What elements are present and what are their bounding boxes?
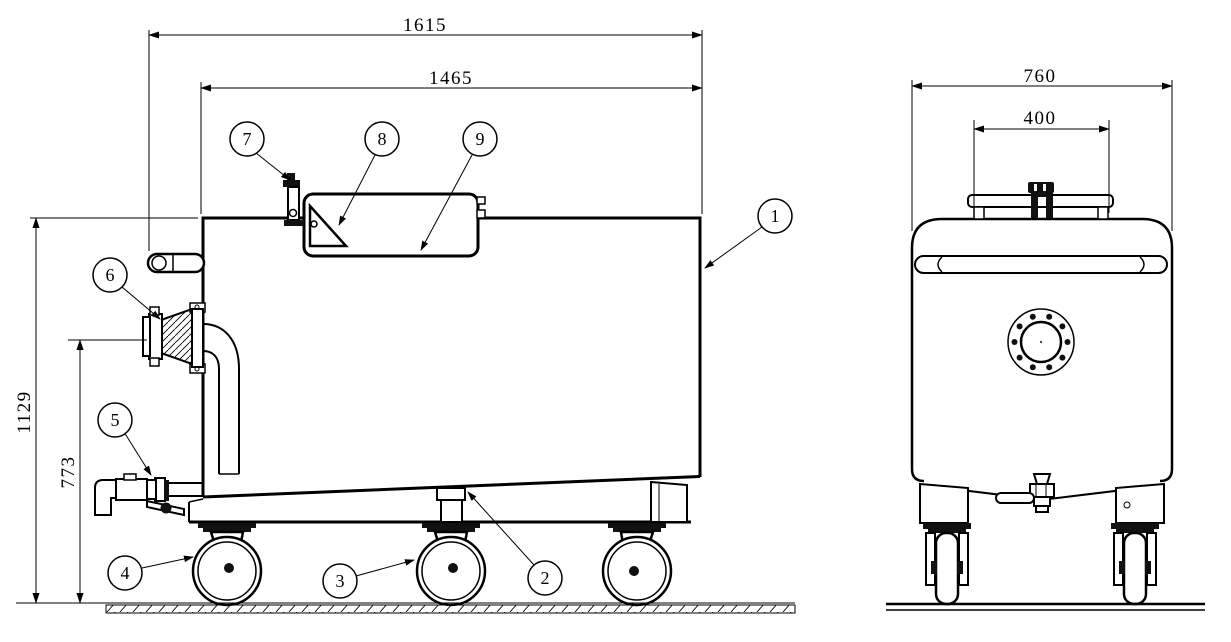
callout-label-9: 9 <box>476 129 485 149</box>
skirt-left <box>920 484 968 523</box>
hinge-upper <box>477 197 485 204</box>
ground-side <box>16 603 795 613</box>
hinge-lower <box>477 210 485 218</box>
callout-label-8: 8 <box>378 129 387 149</box>
callout-label-6: 6 <box>106 265 115 285</box>
handle-bar-front <box>915 256 1167 273</box>
drawing-canvas: 1615 1465 1129 773 1 2 <box>0 0 1231 642</box>
handle-bar-side <box>148 254 204 272</box>
dim-label-overall-height: 1129 <box>14 390 35 433</box>
dim-label-body-length: 1465 <box>429 68 473 89</box>
valve-lever-front <box>996 493 1034 503</box>
dim-label-overall-length: 1615 <box>403 15 447 36</box>
callout-label-3: 3 <box>336 571 345 591</box>
callout-label-5: 5 <box>111 410 120 430</box>
callout-label-2: 2 <box>541 568 550 588</box>
callout-label-1: 1 <box>771 206 780 226</box>
callout-label-7: 7 <box>243 129 252 149</box>
skirt-right <box>1116 484 1164 523</box>
dim-label-outlet-height: 773 <box>58 456 79 489</box>
support-bracket <box>437 488 465 500</box>
technical-drawing: 1615 1465 1129 773 1 2 <box>0 0 1231 642</box>
callout-label-4: 4 <box>121 563 130 583</box>
dim-label-hatch-width: 400 <box>1024 108 1057 129</box>
dim-label-overall-width: 760 <box>1024 66 1057 87</box>
